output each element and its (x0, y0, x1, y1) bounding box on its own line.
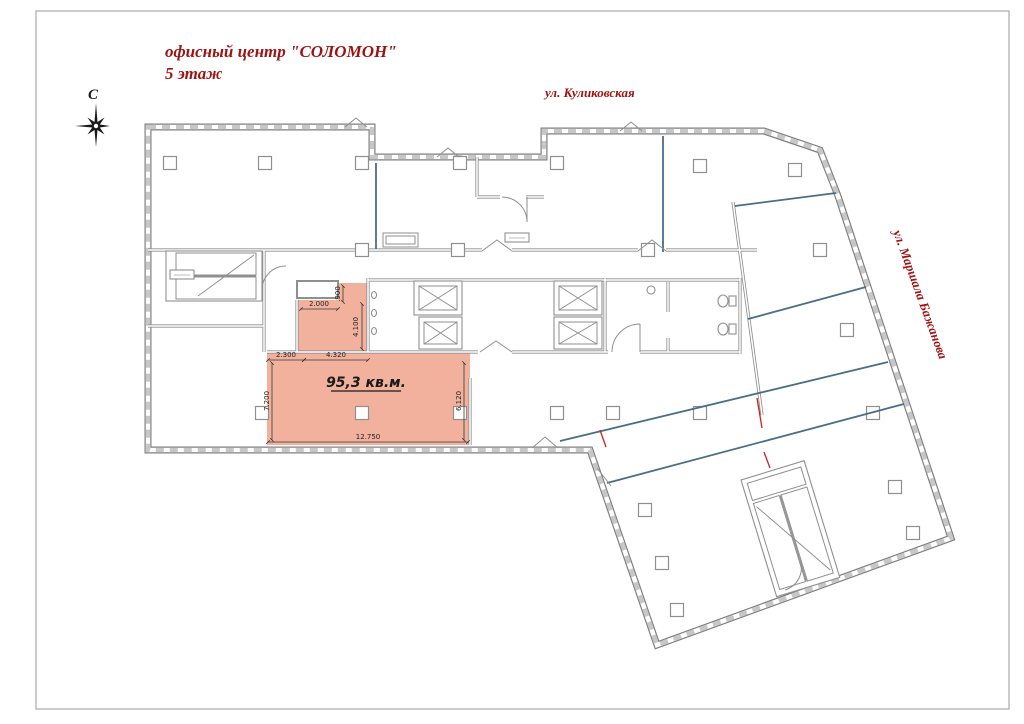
compass-north-label: С (88, 87, 99, 103)
elevator-block-right (554, 281, 602, 349)
compass-center-dot (94, 124, 98, 128)
compass-star-icon (75, 103, 110, 147)
sink-icon (647, 286, 655, 294)
page-title: офисный центр "СОЛОМОН" (165, 42, 397, 61)
compass: С (75, 87, 110, 147)
floor-plan-page: офисный центр "СОЛОМОН" 5 этаж ул. Кулик… (0, 0, 1024, 724)
dim-inset-width: 2.000 (309, 300, 329, 308)
toilet-icon (718, 295, 728, 307)
dim-left-height: 7.200 (263, 391, 271, 411)
urinal-icon (372, 328, 377, 335)
dim-top-right: 4.320 (326, 351, 346, 359)
dim-top-left: 2.300 (276, 351, 296, 359)
floor-plan-canvas: офисный центр "СОЛОМОН" 5 этаж ул. Кулик… (0, 0, 1024, 724)
toilet-tank (729, 296, 736, 306)
toilet-icon (718, 323, 728, 335)
room-area-label: 95,3 кв.м. (326, 375, 406, 391)
toilet-tank (729, 324, 736, 334)
urinal-icon (372, 310, 377, 317)
dim-notch-height: 4.100 (352, 317, 360, 337)
urinal-icon (372, 292, 377, 299)
street-label-right: ул. Маршала Бажанова (889, 226, 951, 361)
dim-bottom-width: 12.750 (356, 433, 381, 441)
elevator-block-left (414, 281, 462, 349)
page-subtitle: 5 этаж (165, 64, 223, 83)
room-area-value: 95,3 кв.м. (326, 375, 406, 391)
street-label-top: ул. Куликовская (543, 85, 635, 100)
title-block: офисный центр "СОЛОМОН" 5 этаж (165, 42, 397, 83)
dim-inset-height: .900 (334, 286, 342, 302)
dim-right-height: 6.120 (455, 391, 463, 411)
closet-inset (297, 281, 338, 298)
